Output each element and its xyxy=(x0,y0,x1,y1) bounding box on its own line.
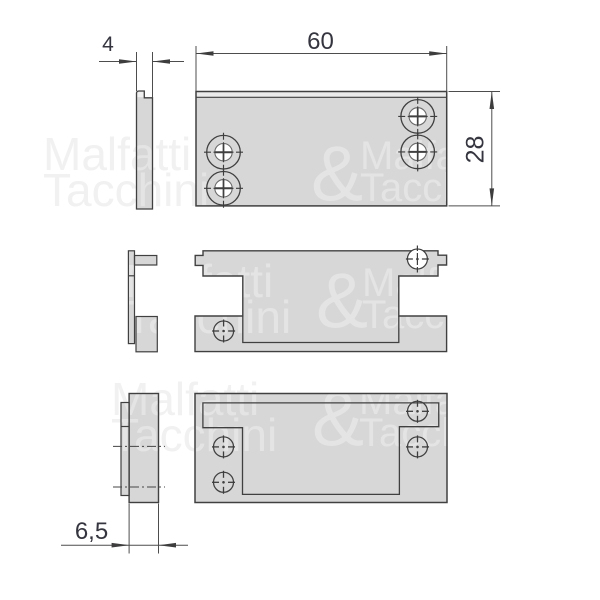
svg-text:Tacchini: Tacchini xyxy=(360,166,505,210)
svg-text:&: & xyxy=(311,129,363,217)
svg-text:28: 28 xyxy=(462,136,490,164)
svg-text:Tacchini: Tacchini xyxy=(43,164,209,216)
svg-text:Tacchini: Tacchini xyxy=(362,293,507,337)
svg-text:6,5: 6,5 xyxy=(75,518,108,545)
svg-text:4: 4 xyxy=(102,33,114,56)
svg-text:&: & xyxy=(316,256,368,344)
svg-text:60: 60 xyxy=(307,28,334,55)
svg-text:&: & xyxy=(312,374,364,462)
svg-text:Tacchini: Tacchini xyxy=(359,411,504,455)
